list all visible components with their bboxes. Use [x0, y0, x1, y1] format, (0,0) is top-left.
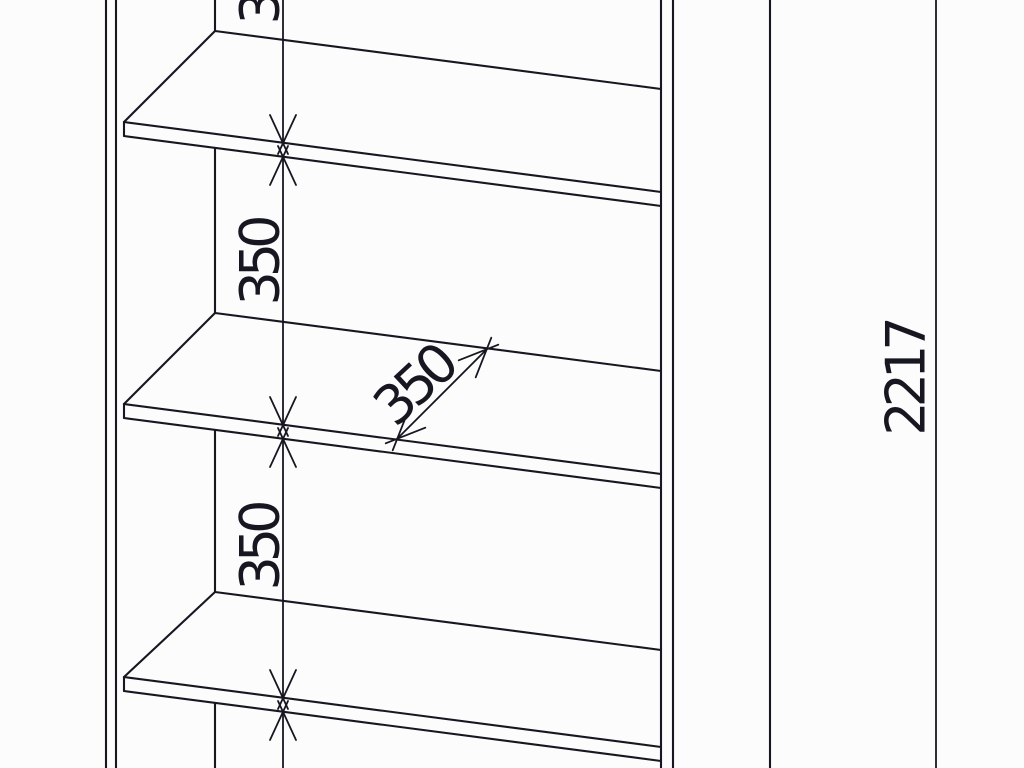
drawing-background — [0, 0, 1024, 768]
shelf-gap-lower-label: 350 — [229, 503, 292, 591]
furniture-dimension-drawing: 350 350 350 350 2217 — [0, 0, 1024, 768]
overall-height-label: 2217 — [875, 321, 938, 436]
drawing-canvas: 350 350 350 350 2217 — [0, 0, 1024, 768]
shelf-gap-middle-label: 350 — [229, 218, 292, 306]
shelf-gap-upper-label: 350 — [229, 0, 292, 25]
